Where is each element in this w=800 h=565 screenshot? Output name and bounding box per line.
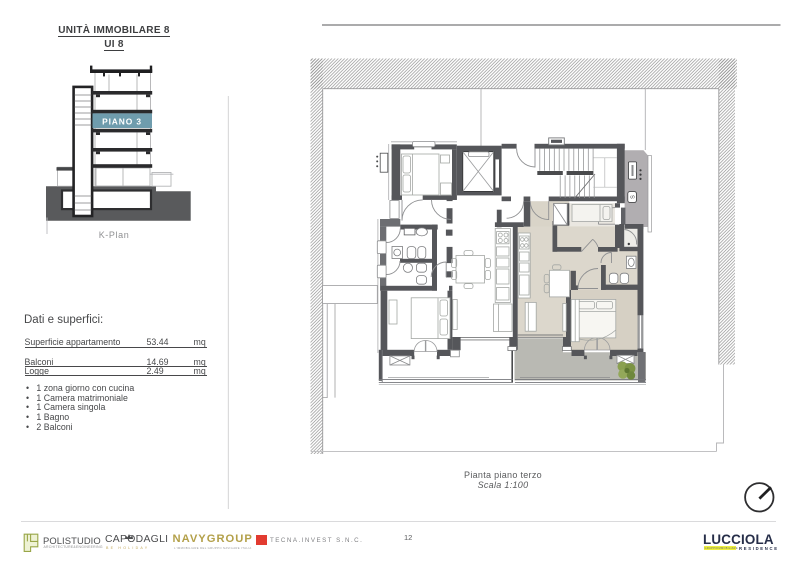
svg-text:PIANO 3: PIANO 3 bbox=[102, 116, 142, 126]
svg-text:S: S bbox=[631, 195, 637, 199]
